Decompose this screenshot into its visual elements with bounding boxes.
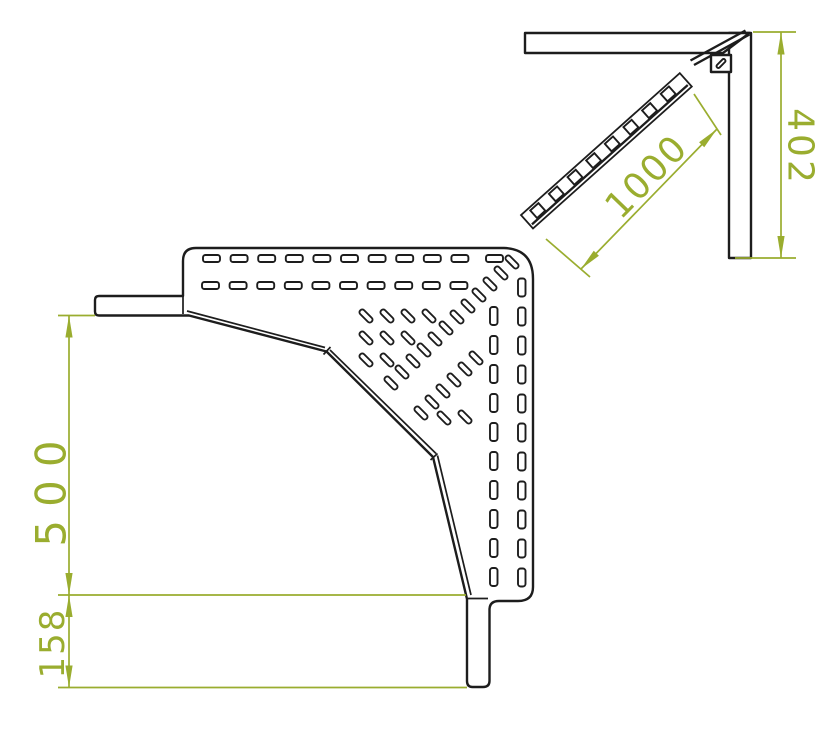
dim-label-158: 158 <box>33 608 73 679</box>
slot <box>341 255 358 262</box>
side-view <box>521 31 751 259</box>
slot <box>285 282 302 289</box>
slot <box>518 395 526 413</box>
slot <box>490 510 498 528</box>
slot <box>490 307 498 325</box>
arrow-sw-icon <box>578 251 598 272</box>
side-view-horizontal-rail <box>525 33 750 53</box>
slot <box>518 279 526 297</box>
slot <box>369 255 386 262</box>
dim-label-500: 500 <box>27 427 76 546</box>
side-view-vertical-rail <box>729 33 751 258</box>
arrow-ne-icon <box>699 126 719 147</box>
slot <box>490 336 498 354</box>
slot <box>286 255 303 262</box>
slot <box>230 282 247 289</box>
slot <box>490 423 498 441</box>
slot <box>258 255 275 262</box>
slot <box>518 366 526 384</box>
slot <box>518 424 526 442</box>
slot <box>257 282 274 289</box>
arrow-up-icon <box>65 316 72 338</box>
slot <box>451 255 468 262</box>
dim-label-402: 402 <box>780 108 821 186</box>
slot <box>424 255 441 262</box>
slot <box>450 282 467 289</box>
extension-tick-ne <box>694 94 721 135</box>
plan-view <box>95 248 533 687</box>
arrow-up-icon <box>777 33 784 55</box>
slot <box>518 511 526 529</box>
extension-tick-sw <box>546 239 590 277</box>
slot <box>312 282 329 289</box>
slot <box>490 539 498 557</box>
slot <box>490 365 498 383</box>
slot <box>423 282 440 289</box>
slot <box>518 540 526 558</box>
slot <box>518 569 526 587</box>
slot <box>231 255 248 262</box>
slot <box>340 282 357 289</box>
slot <box>490 481 498 499</box>
plate-outline <box>95 248 533 687</box>
slot <box>518 337 526 355</box>
slot <box>490 394 498 412</box>
slot <box>490 452 498 470</box>
technical-drawing-page: 500 158 1000 402 <box>0 0 835 742</box>
slot <box>368 282 385 289</box>
slot <box>203 255 220 262</box>
slot <box>395 282 412 289</box>
slot <box>518 308 526 326</box>
slot <box>518 482 526 500</box>
slot <box>490 568 498 586</box>
arrow-down-icon <box>777 236 784 258</box>
arrow-down-icon <box>65 573 72 595</box>
slot <box>202 282 219 289</box>
slot <box>518 453 526 471</box>
technical-drawing: 500 158 1000 402 <box>0 0 835 742</box>
slot <box>486 255 503 262</box>
slot <box>396 255 413 262</box>
slot <box>313 255 330 262</box>
